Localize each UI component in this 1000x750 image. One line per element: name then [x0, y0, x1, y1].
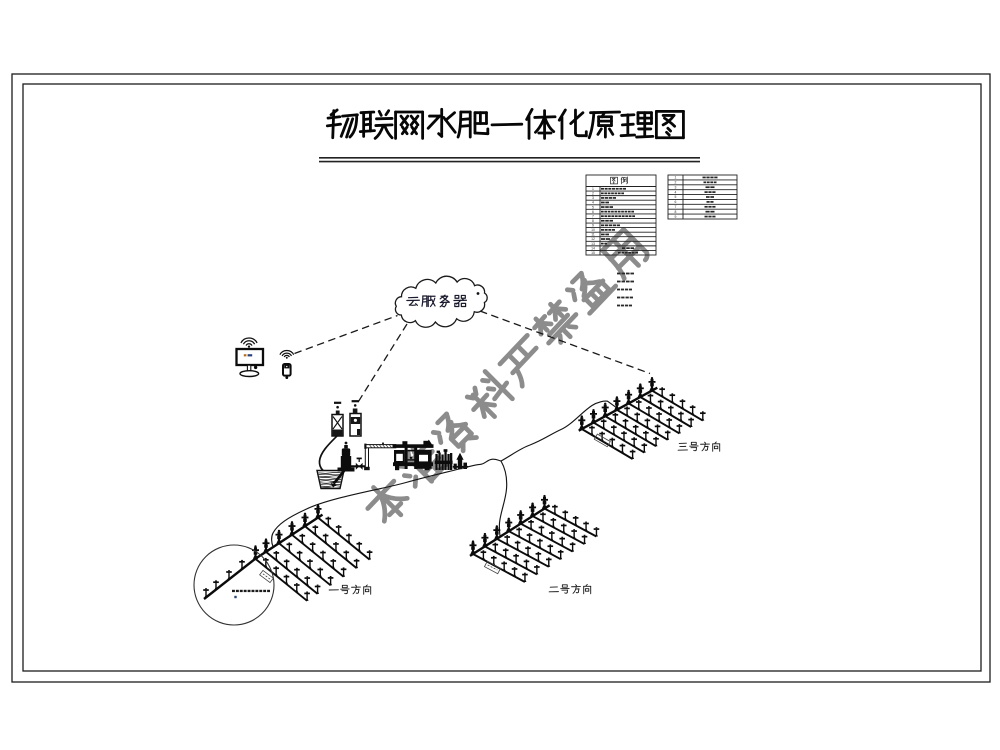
svg-text:6: 6: [592, 210, 594, 214]
svg-text:9: 9: [592, 224, 594, 228]
svg-text:3: 3: [675, 185, 677, 189]
svg-text:2: 2: [592, 192, 594, 196]
svg-text:5: 5: [675, 195, 677, 199]
svg-text:15: 15: [591, 251, 595, 255]
svg-text:8: 8: [592, 219, 594, 223]
svg-text:11: 11: [591, 233, 595, 237]
svg-text:4: 4: [675, 190, 677, 194]
svg-text:1: 1: [675, 176, 677, 180]
svg-text:12: 12: [591, 237, 595, 241]
svg-text:10: 10: [591, 228, 595, 232]
svg-text:4: 4: [592, 201, 594, 205]
svg-text:3: 3: [592, 196, 594, 200]
svg-text:9: 9: [675, 215, 677, 219]
svg-text:13: 13: [591, 242, 595, 246]
svg-text:1: 1: [592, 187, 594, 191]
svg-text:8: 8: [675, 210, 677, 214]
svg-text:7: 7: [675, 205, 677, 209]
svg-text:5: 5: [592, 205, 594, 209]
svg-text:7: 7: [592, 214, 594, 218]
svg-text:14: 14: [591, 246, 595, 250]
svg-text:2: 2: [675, 181, 677, 185]
svg-text:6: 6: [675, 200, 677, 204]
